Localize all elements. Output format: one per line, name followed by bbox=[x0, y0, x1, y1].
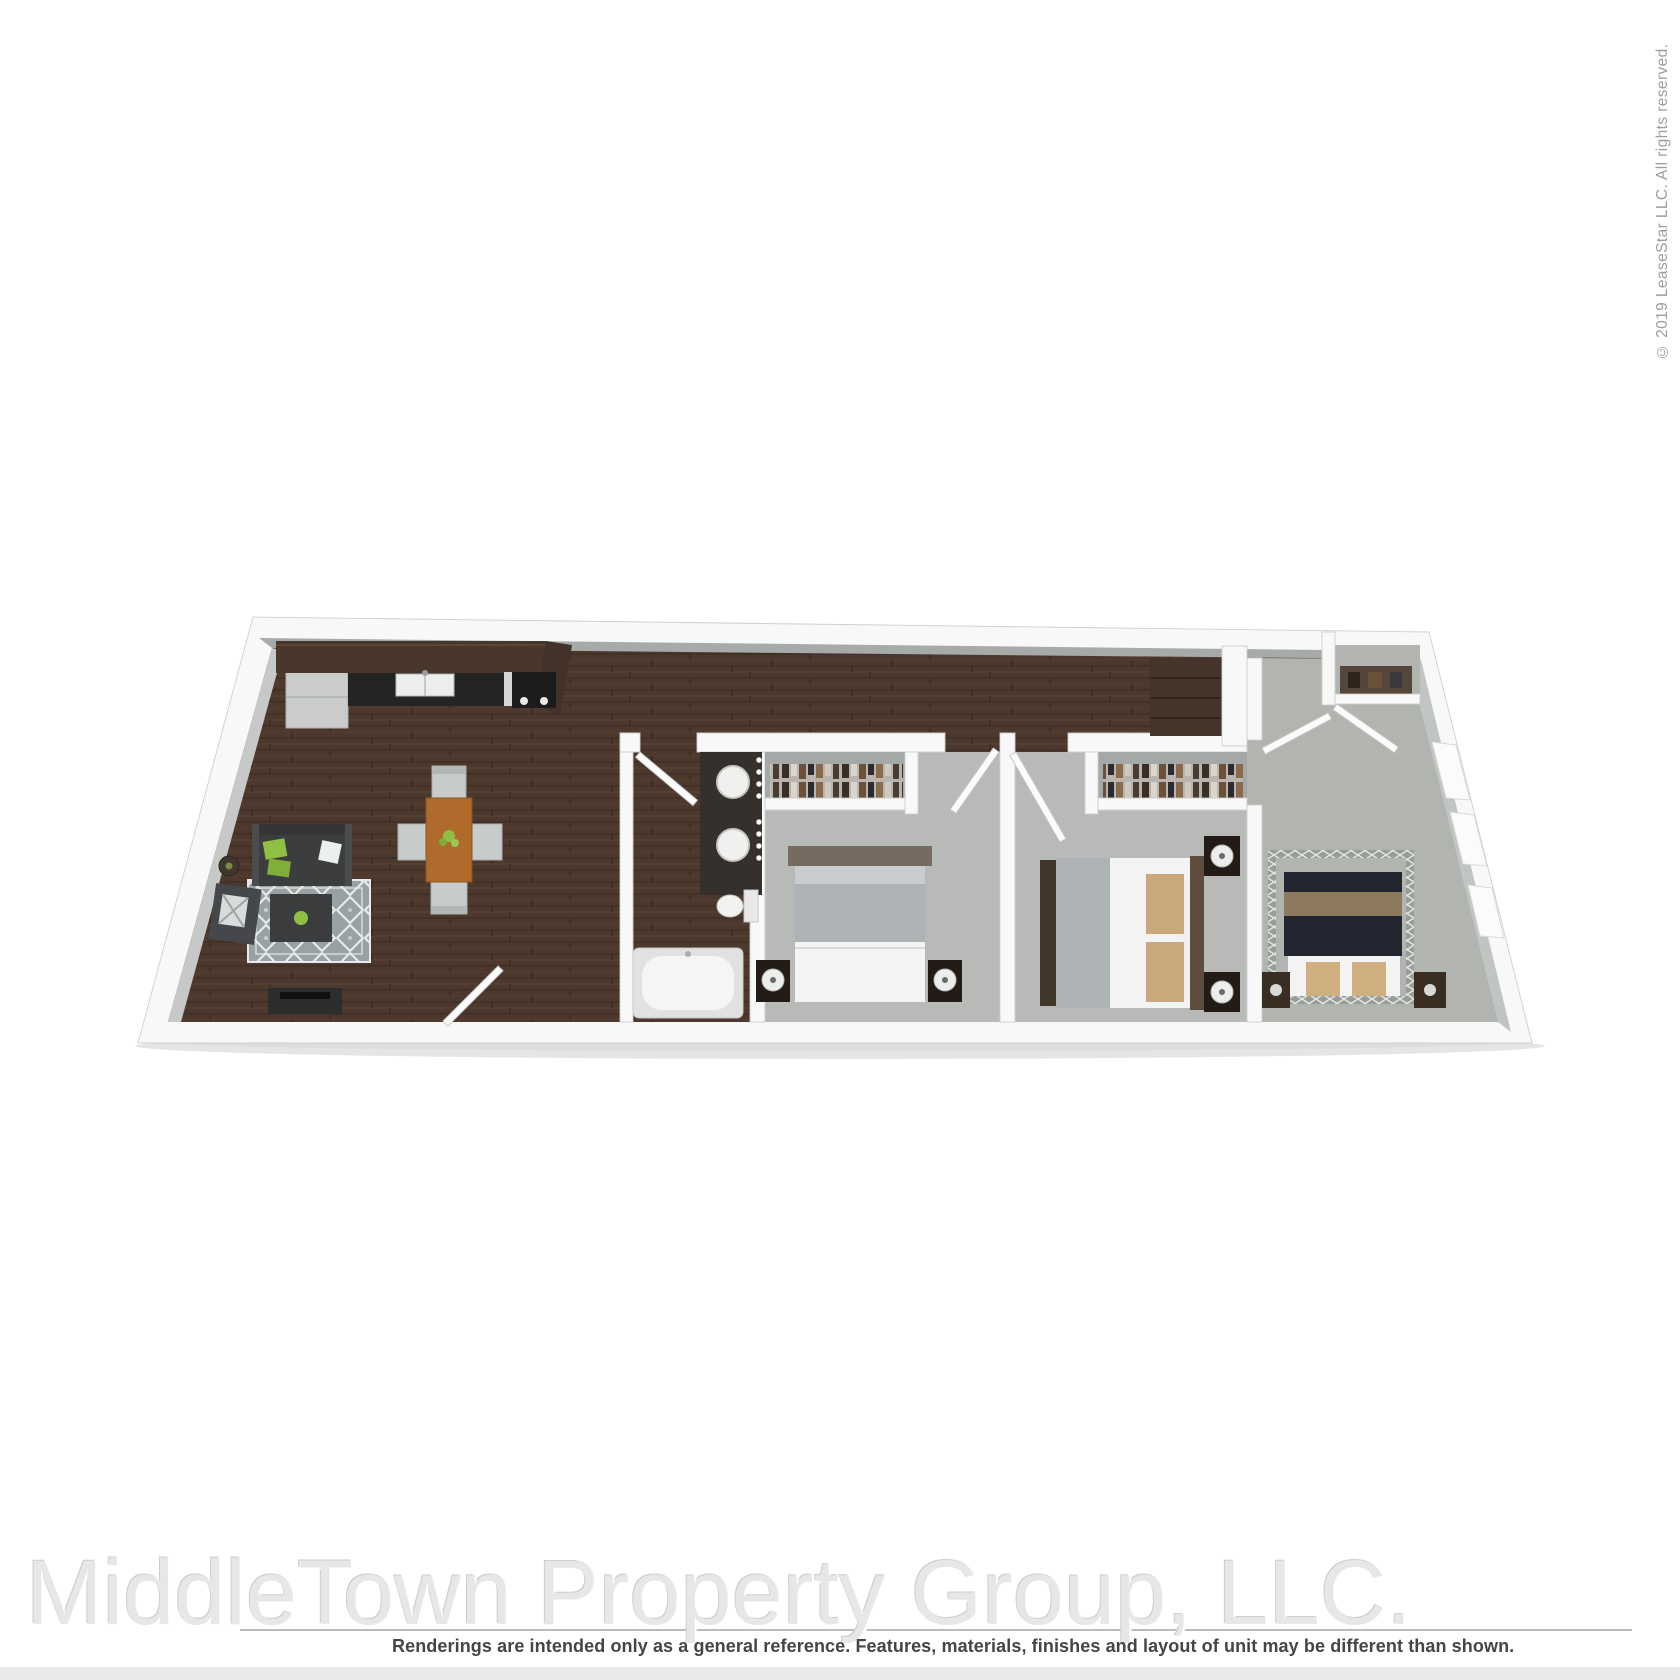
floor-plan-rendering bbox=[0, 0, 1680, 1680]
bed2-bed3-wall-upper bbox=[1247, 658, 1262, 740]
sink-faucet bbox=[422, 670, 428, 676]
table-accent bbox=[294, 911, 308, 925]
green-pillow bbox=[263, 838, 288, 860]
stove-knob bbox=[540, 697, 548, 705]
headboard bbox=[1190, 856, 1204, 1010]
tv-console bbox=[268, 988, 342, 1014]
blanket bbox=[1056, 858, 1110, 1008]
canopy-frame bbox=[1406, 850, 1414, 1004]
tv bbox=[280, 992, 330, 999]
tan-pillow bbox=[1146, 874, 1184, 934]
floor-plan-page: © 2019 LeaseStar LLC. All rights reserve… bbox=[0, 0, 1680, 1680]
tan-pillow bbox=[1146, 942, 1184, 1002]
vanity-sink bbox=[717, 766, 749, 798]
bath-left-wall bbox=[620, 733, 633, 1022]
white-pillow bbox=[318, 840, 342, 864]
hall-wardrobe bbox=[1150, 646, 1247, 746]
bed2-bed3-wall-lower bbox=[1247, 805, 1262, 1022]
canopy-frame bbox=[1268, 850, 1414, 858]
hanging-clothes bbox=[1103, 764, 1243, 798]
range-stove bbox=[512, 672, 556, 708]
stove-knob bbox=[520, 697, 528, 705]
hanging-clothes bbox=[770, 764, 903, 798]
armchair bbox=[208, 883, 261, 945]
bedroom2-closet bbox=[1085, 752, 1247, 814]
bedroom1-closet bbox=[765, 752, 918, 814]
tub-faucet bbox=[685, 951, 691, 957]
toilet-tank bbox=[744, 890, 758, 922]
blanket bbox=[795, 884, 925, 942]
watermark-text: MiddleTown Property Group, LLC. bbox=[26, 1547, 1412, 1639]
bedding-band bbox=[1284, 892, 1402, 916]
tan-pillow bbox=[1352, 962, 1386, 1000]
hall-wall-seg bbox=[697, 733, 945, 752]
toilet-bowl bbox=[717, 895, 743, 917]
tan-pillow bbox=[1306, 962, 1340, 1000]
dining-chair bbox=[472, 824, 502, 860]
headboard bbox=[788, 846, 932, 866]
vanity-sink bbox=[717, 829, 749, 861]
duvet bbox=[795, 942, 925, 1002]
footer-band bbox=[0, 1667, 1680, 1680]
foot-bench bbox=[1040, 860, 1056, 1006]
green-pillow bbox=[267, 859, 291, 878]
copyright-notice: © 2019 LeaseStar LLC. All rights reserve… bbox=[1654, 26, 1672, 360]
hall-wall-seg bbox=[620, 733, 640, 752]
bed1-bed2-wall bbox=[1000, 733, 1015, 1022]
dining-chair bbox=[398, 824, 428, 860]
disclaimer-text: Renderings are intended only as a genera… bbox=[392, 1636, 1514, 1657]
